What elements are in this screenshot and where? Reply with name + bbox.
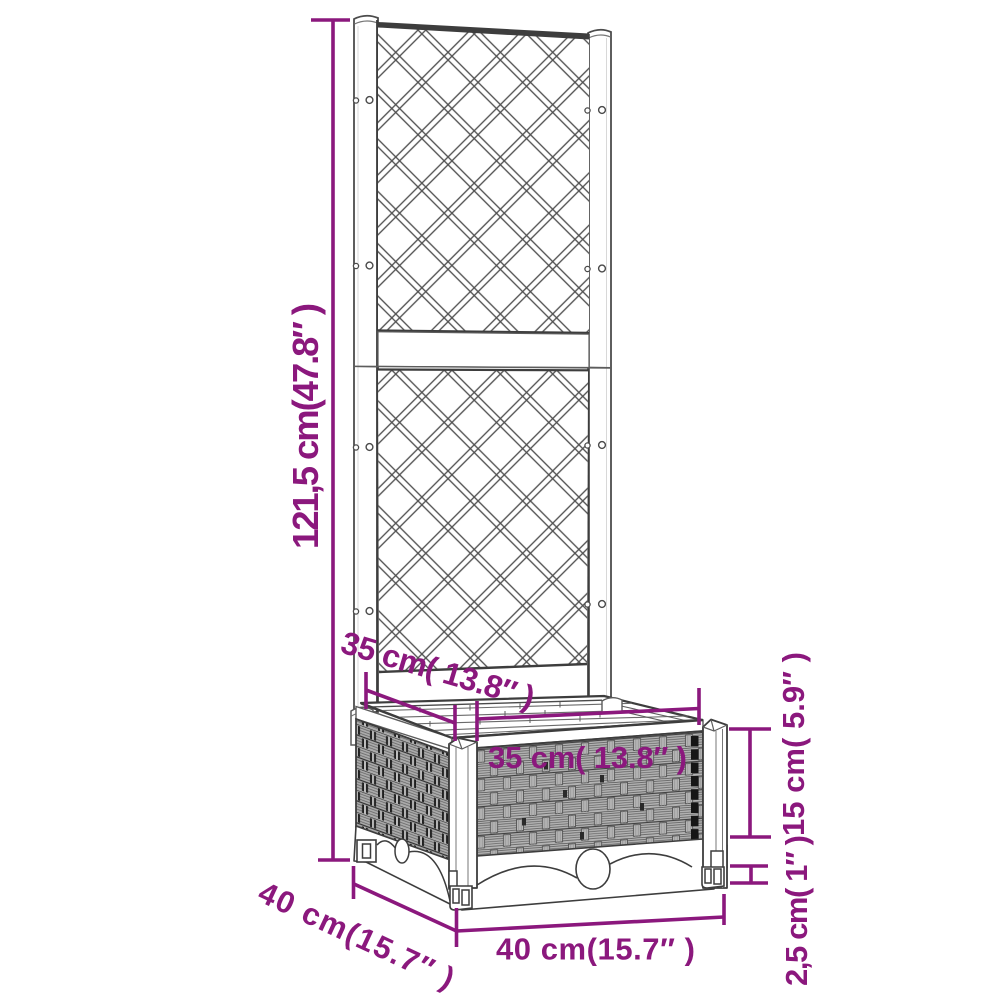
svg-text:2,5 cm( 1″ ): 2,5 cm( 1″ ) [779,835,814,986]
svg-text:121,5 cm(47.8″ ): 121,5 cm(47.8″ ) [285,303,326,549]
svg-text:40 cm(15.7″ ): 40 cm(15.7″ ) [496,932,695,967]
svg-text:15 cm( 5.9″ ): 15 cm( 5.9″ ) [776,652,811,836]
svg-text:35 cm( 13.8″ ): 35 cm( 13.8″ ) [488,740,687,775]
